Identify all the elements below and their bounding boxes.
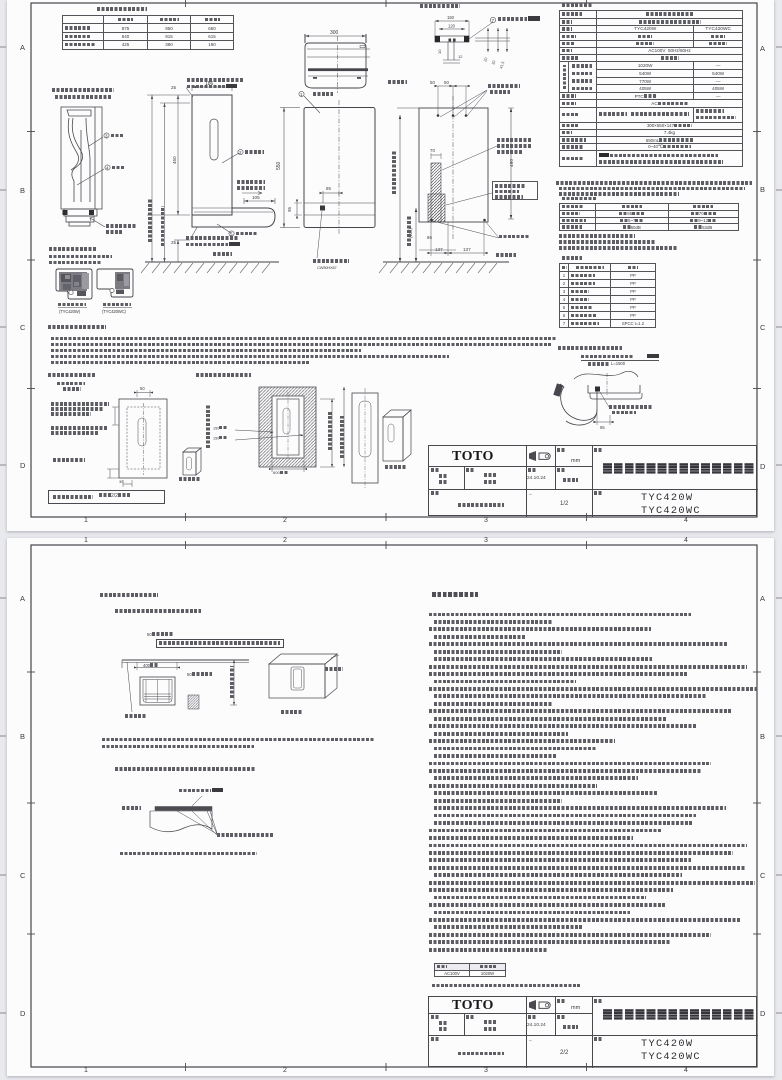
svg-text:85: 85 [326, 186, 331, 191]
svg-text:137: 137 [463, 247, 471, 252]
svg-text:30: 30 [491, 60, 496, 65]
svg-text:86: 86 [427, 235, 432, 240]
svg-text:137: 137 [435, 247, 443, 252]
svg-text:450: 450 [172, 156, 177, 164]
svg-text:25: 25 [171, 85, 177, 90]
svg-text:150: 150 [447, 15, 455, 20]
svg-text:95: 95 [287, 207, 292, 212]
svg-text:490: 490 [509, 159, 515, 167]
svg-text:105: 105 [252, 195, 260, 200]
svg-text:120: 120 [448, 24, 456, 29]
svg-text:50: 50 [140, 386, 145, 391]
svg-text:550: 550 [276, 161, 282, 170]
svg-text:10: 10 [437, 49, 442, 54]
svg-text:25: 25 [171, 240, 177, 245]
svg-text:300: 300 [330, 30, 339, 36]
svg-text:65: 65 [600, 425, 605, 430]
svg-text:50: 50 [430, 80, 435, 85]
svg-text:70: 70 [430, 148, 435, 153]
svg-text:41.5: 41.5 [499, 61, 505, 69]
svg-text:50: 50 [444, 80, 449, 85]
svg-text:12: 12 [458, 54, 463, 59]
svg-text:20: 20 [483, 57, 488, 62]
